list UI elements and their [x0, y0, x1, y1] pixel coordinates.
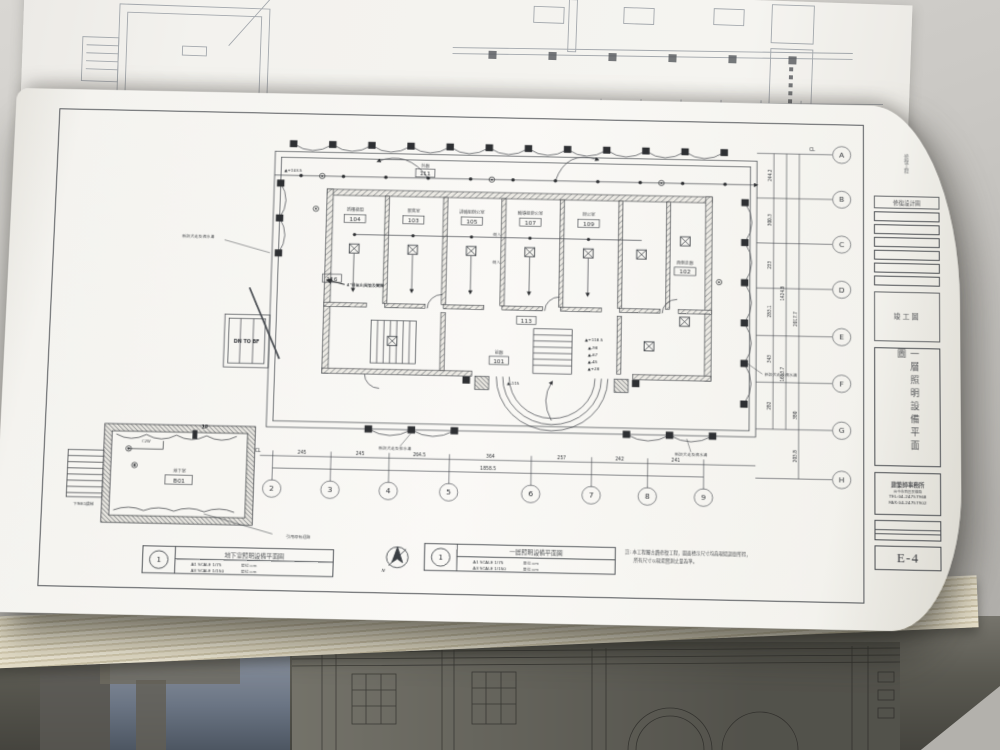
room-id: 109	[583, 222, 595, 228]
room-id: 104	[349, 217, 361, 223]
firm-address: 台中市西區民權路	[894, 490, 922, 495]
room-id: 101	[493, 359, 505, 365]
table-surface-corner	[890, 686, 1000, 750]
level-mark: ▲-67	[588, 352, 598, 357]
grid-bubble-label: 7	[589, 491, 594, 500]
room-name: 前廊	[495, 349, 504, 355]
dn-to-bf-label: DN TO BF	[234, 339, 260, 345]
grid-bubble-label: 6	[528, 490, 533, 499]
grid-bubble-label: G	[839, 426, 845, 435]
legend-scale: A3 SCALE 1/150	[473, 565, 507, 571]
grid-bubble-label: F	[840, 379, 844, 388]
sheet-number: E-4	[874, 545, 941, 571]
room-labels: 新樓梯間 104 展售室 103 訓輔組辦公室 105 輔導組辦公室 107 辦…	[233, 159, 696, 369]
legend-title: 一層照明設備平面圖	[509, 548, 563, 557]
grid-bubble-label: D	[839, 285, 845, 294]
legend-unit: 單位:cm	[241, 569, 257, 574]
underlying-elevation-page	[292, 642, 900, 750]
grid-bubble-label: 4	[386, 487, 391, 496]
main-sheet-e4: 新樓梯間 104 展售室 103 訓輔組辦公室 105 輔導組辦公室 107 辦…	[0, 88, 962, 633]
room-name: 辦公室	[582, 211, 595, 217]
dimension-total: 1653.7	[780, 367, 786, 382]
room-name: 外廊	[421, 162, 430, 168]
light-fixtures	[269, 140, 749, 441]
legend-unit: 單位:cm	[523, 566, 539, 571]
legend-unit: 單位:cm	[523, 560, 539, 565]
level-mark: ▲-115	[507, 381, 520, 386]
sheet-title-box: 一層照明設備平面圖	[874, 347, 941, 467]
room-id: 111	[420, 172, 432, 178]
basement-plan	[65, 423, 276, 534]
note-line: 註: 本工程屬古蹟修復工程，圖面標示尺寸均為現場調查所得，	[625, 549, 751, 559]
legend-scale: A3 SCALE 1/150	[191, 568, 225, 574]
grid-bubble-label: 9	[701, 493, 706, 502]
side-entry-label: 側入	[492, 260, 500, 265]
as-built-stamp: 竣工圖	[874, 291, 940, 342]
annotation: 新設犬走及洩水溝	[675, 452, 708, 458]
dimension: 203.8	[792, 450, 798, 463]
photo-column	[136, 680, 166, 750]
legend-number: 1	[438, 553, 443, 562]
dimension: 245	[356, 451, 365, 457]
column-grid-bottom	[258, 450, 755, 507]
centerline-label: CL	[255, 448, 261, 454]
grid-bubble-label: H	[839, 475, 845, 484]
room-name: 新樓梯間	[347, 207, 364, 213]
west-annex	[223, 287, 281, 368]
dimension-total: 2017.7	[793, 311, 799, 326]
revision-row	[874, 263, 940, 274]
level-mark: ▲-45	[588, 359, 598, 364]
grid-bubble-label: 3	[327, 485, 332, 494]
dimension: 244.2	[768, 169, 774, 181]
architect-firm-box: 建築師事務所 台中市西區民權路 TEL:04-24757968 FAX:04-2…	[874, 472, 941, 516]
dimension: 380	[792, 411, 798, 420]
legend-scale: A1 SCALE 1/75	[473, 559, 504, 565]
leader-note: 引用原有迴路	[286, 534, 311, 540]
level-mark: ▲+28	[588, 366, 600, 371]
basement-id: B01	[173, 478, 185, 484]
stair-note: 下至B1樓梯	[73, 501, 94, 506]
level-mark: ▲+118.5	[585, 337, 604, 342]
grid-bubble-label: 8	[645, 492, 650, 501]
room-name: 訓輔組辦公室	[459, 209, 485, 215]
revision-row	[874, 224, 940, 235]
dimension: 257	[557, 456, 566, 462]
basement-name: 地下室	[173, 467, 186, 473]
dimension: 233	[767, 261, 773, 269]
room-id: 107	[525, 221, 537, 227]
dimension: 364	[486, 454, 495, 460]
sheet-border: 新樓梯間 104 展售室 103 訓輔組辦公室 105 輔導組辦公室 107 辦…	[37, 108, 864, 603]
legend-unit: 單位:cm	[241, 562, 257, 567]
legend-number: 1	[156, 555, 161, 564]
stair-center	[533, 329, 572, 374]
firm-fax: FAX:04-24757902	[889, 499, 927, 505]
revision-row	[874, 250, 940, 261]
first-floor-plan-drawing: 新樓梯間 104 展售室 103 訓輔組辦公室 105 輔導組辦公室 107 辦…	[38, 109, 863, 602]
title-block: 修復工程 修復設計圖 竣工圖 一層照明設備平面圖 建築師事務所 台中市西區民權路…	[874, 133, 942, 610]
grid-bubble-label: 5	[446, 488, 451, 497]
grid-bubble-label: E	[839, 333, 844, 342]
legend-title: 地下室照明設備平面圖	[224, 551, 284, 560]
main-plan	[221, 142, 757, 443]
north-label: N	[382, 568, 385, 573]
dimension-total: 1424.8	[780, 286, 786, 301]
photo-of-blueprint-book: { "sheet": { "number": "E-4", "stamp": "…	[0, 0, 1000, 750]
dimension: 282	[767, 401, 773, 410]
side-entry-label: 側入	[493, 231, 501, 236]
general-note: 註: 本工程屬古蹟修復工程，圖面標示尺寸均為現場調查所得， 所有尺寸以現場實測丈…	[625, 549, 751, 566]
dimension: 245	[298, 450, 307, 456]
shadow-gradient	[292, 642, 900, 750]
revision-row	[874, 211, 940, 222]
dimension: 300.3	[767, 214, 773, 226]
legend-first-floor	[424, 543, 615, 574]
level-mark: ▲-98	[588, 345, 598, 350]
sheet-title-vertical: 一層照明設備平面圖	[894, 349, 921, 466]
fixture-label: C2W	[142, 440, 151, 444]
entrance-porch	[474, 376, 628, 432]
annotation: 新設犬走及洩水溝	[182, 233, 214, 239]
signature-rows	[874, 520, 941, 542]
dimension-total: 1858.5	[480, 466, 496, 472]
room-id: 102	[679, 270, 691, 276]
annotation: 新設犬走及排水溝	[379, 446, 412, 452]
panel-label: 1P	[201, 425, 209, 431]
dimension: 242	[615, 457, 624, 463]
level-mark: ▲+103.5	[284, 167, 303, 172]
revision-row	[874, 275, 940, 286]
room-name: 西側走廊	[677, 259, 694, 265]
legend-basement	[142, 546, 334, 577]
vent-annotation: 4"排氣出風管及閘閥	[347, 283, 384, 289]
room-name: 展售室	[407, 208, 420, 214]
grid-bubble-label: B	[839, 195, 844, 204]
grid-bubble-label: A	[839, 151, 844, 160]
title-block-header: 修復工程	[874, 133, 940, 195]
note-line: 所有尺寸以現場實測丈量為準。	[634, 556, 698, 564]
centerline-label: CL	[809, 148, 815, 154]
dimension: 264.5	[413, 453, 426, 459]
grid-bubble-label: C	[839, 240, 844, 249]
dimension: 241	[671, 458, 680, 464]
grid-bubble-label: 2	[269, 484, 274, 493]
design-label-box: 修復設計圖	[874, 195, 940, 209]
north-arrow: N	[382, 547, 409, 573]
revision-row	[874, 237, 940, 248]
room-id: 103	[408, 218, 420, 224]
dimension: 343	[767, 355, 773, 363]
room-id: 105	[466, 219, 478, 225]
project-name-vertical: 修復工程	[903, 154, 910, 174]
legend-scale: A1 SCALE 1/75	[191, 561, 222, 567]
dimension: 283.1	[767, 305, 773, 317]
room-name: 輔導組辦公室	[518, 210, 544, 216]
room-id: 113	[521, 319, 533, 325]
